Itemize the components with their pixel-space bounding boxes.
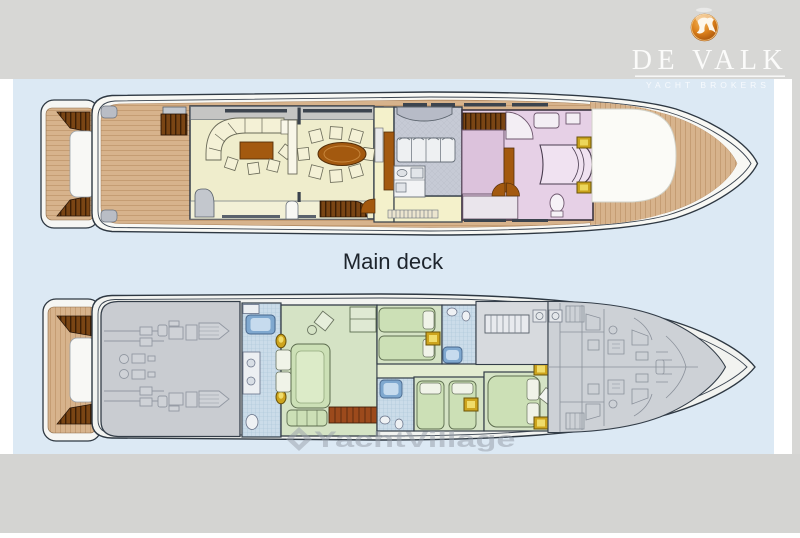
svg-text:YachtVillage: YachtVillage [314,428,515,452]
